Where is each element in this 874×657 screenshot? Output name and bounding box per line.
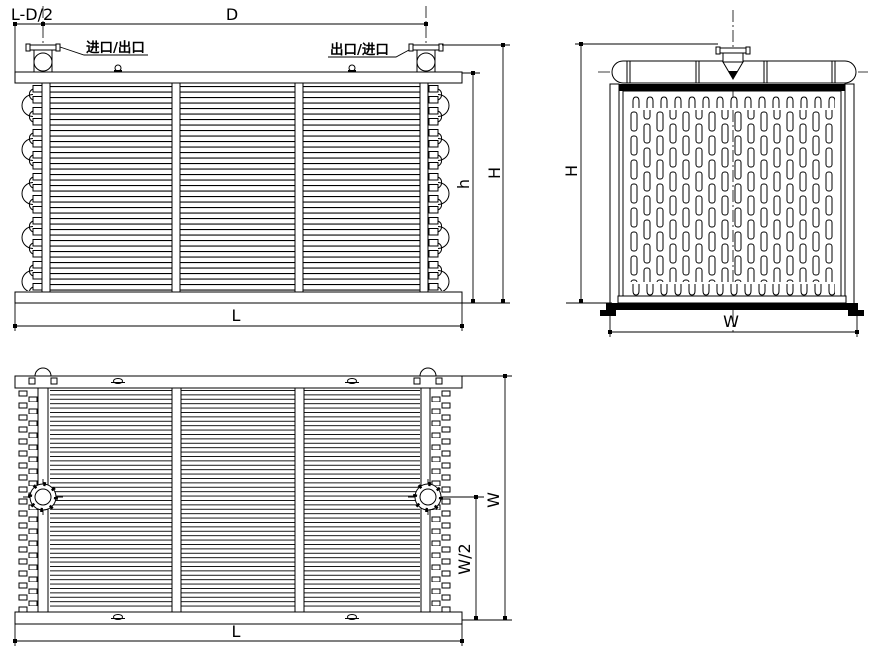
heat-exchanger-drawing: L-D/2 D 进口/出口 出口/进口 h H L bbox=[0, 0, 874, 657]
front-tube-field bbox=[50, 86, 420, 292]
front-bolt-left bbox=[114, 65, 122, 72]
plan-fin-field bbox=[50, 390, 420, 610]
front-bottom-plate bbox=[15, 292, 462, 303]
plan-support-2 bbox=[295, 388, 304, 612]
front-tubesheet-left bbox=[42, 83, 50, 292]
label-outlet-inlet: 出口/进口 bbox=[330, 41, 389, 58]
label-H-side: H bbox=[562, 165, 581, 177]
front-ubends-left bbox=[19, 85, 42, 291]
label-L-front: L bbox=[232, 306, 241, 325]
side-bottom-plate bbox=[618, 296, 846, 303]
front-support-1 bbox=[172, 83, 180, 292]
front-left-nozzle bbox=[26, 44, 60, 72]
side-tube-guides-bottom bbox=[629, 284, 835, 297]
drawing-canvas: L-D/2 D 进口/出口 出口/进口 h H L bbox=[0, 0, 874, 657]
front-right-nozzle bbox=[409, 44, 443, 72]
plan-view: W W/2 L bbox=[13, 368, 512, 646]
label-l-minus-d2: L-D/2 bbox=[11, 5, 53, 24]
side-foot-right bbox=[848, 310, 864, 316]
label-L-plan: L bbox=[232, 622, 241, 641]
side-slot-field bbox=[629, 110, 837, 282]
side-top-plate bbox=[612, 84, 852, 91]
front-tubesheet-right bbox=[420, 83, 428, 292]
side-base-plate bbox=[606, 303, 858, 310]
label-W-plan: W bbox=[484, 492, 503, 508]
front-top-plate bbox=[15, 72, 462, 83]
label-W2-plan: W/2 bbox=[455, 543, 474, 574]
side-foot-left bbox=[600, 310, 616, 316]
plan-side-plate-top bbox=[15, 376, 462, 388]
side-wall-left bbox=[610, 84, 619, 306]
side-view: H W bbox=[562, 10, 868, 337]
label-d: D bbox=[226, 5, 238, 24]
label-inlet-outlet: 进口/出口 bbox=[86, 39, 145, 56]
front-ubends-right bbox=[428, 85, 451, 291]
front-view: L-D/2 D 进口/出口 出口/进口 h H L bbox=[11, 5, 510, 331]
side-tube-guides-top bbox=[629, 95, 835, 108]
front-support-2 bbox=[295, 83, 303, 292]
label-H-front: H bbox=[485, 167, 504, 179]
plan-support-1 bbox=[172, 388, 181, 612]
label-h-front: h bbox=[454, 179, 473, 189]
label-W-side: W bbox=[723, 312, 739, 331]
side-wall-right bbox=[845, 84, 854, 306]
front-bolt-right bbox=[348, 65, 356, 72]
